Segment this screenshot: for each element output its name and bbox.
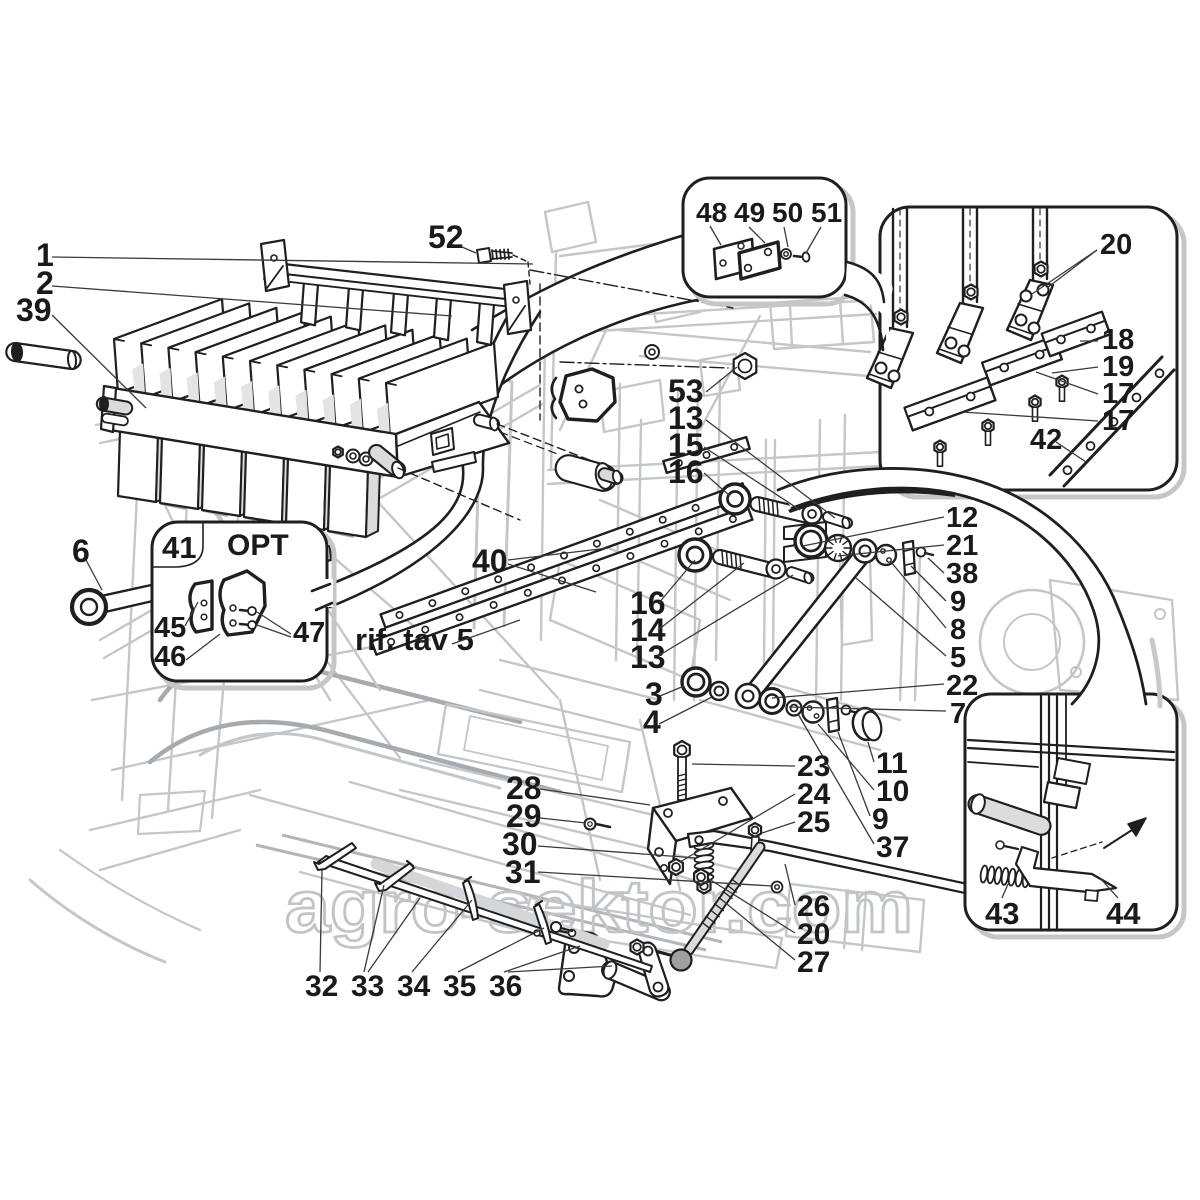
svg-text:47: 47 [293,617,325,649]
svg-text:41: 41 [162,530,196,565]
svg-text:OPT: OPT [227,529,289,562]
svg-text:13: 13 [630,639,666,675]
svg-text:27: 27 [797,946,830,979]
svg-text:4: 4 [643,704,661,740]
svg-text:44: 44 [1106,896,1141,931]
svg-text:42: 42 [1030,424,1062,456]
svg-text:20: 20 [1100,229,1132,261]
svg-text:45: 45 [154,612,186,644]
svg-text:43: 43 [985,896,1019,931]
svg-text:33: 33 [351,970,384,1003]
svg-text:49: 49 [734,197,765,228]
svg-text:51: 51 [811,197,842,228]
svg-text:34: 34 [397,970,431,1003]
svg-text:6: 6 [72,533,90,569]
svg-text:7: 7 [950,698,966,730]
svg-text:32: 32 [305,970,338,1003]
svg-text:37: 37 [876,831,909,864]
svg-text:52: 52 [428,219,464,255]
svg-text:39: 39 [16,292,52,328]
svg-text:rif. tav 5: rif. tav 5 [355,622,474,657]
svg-text:17: 17 [1102,405,1134,437]
svg-text:16: 16 [668,454,704,490]
svg-text:25: 25 [797,806,830,839]
svg-text:46: 46 [154,641,186,673]
svg-text:36: 36 [489,970,522,1003]
svg-text:31: 31 [505,854,541,890]
svg-text:35: 35 [443,970,476,1003]
svg-text:48: 48 [696,197,727,228]
svg-text:40: 40 [472,543,508,579]
svg-text:50: 50 [772,197,803,228]
